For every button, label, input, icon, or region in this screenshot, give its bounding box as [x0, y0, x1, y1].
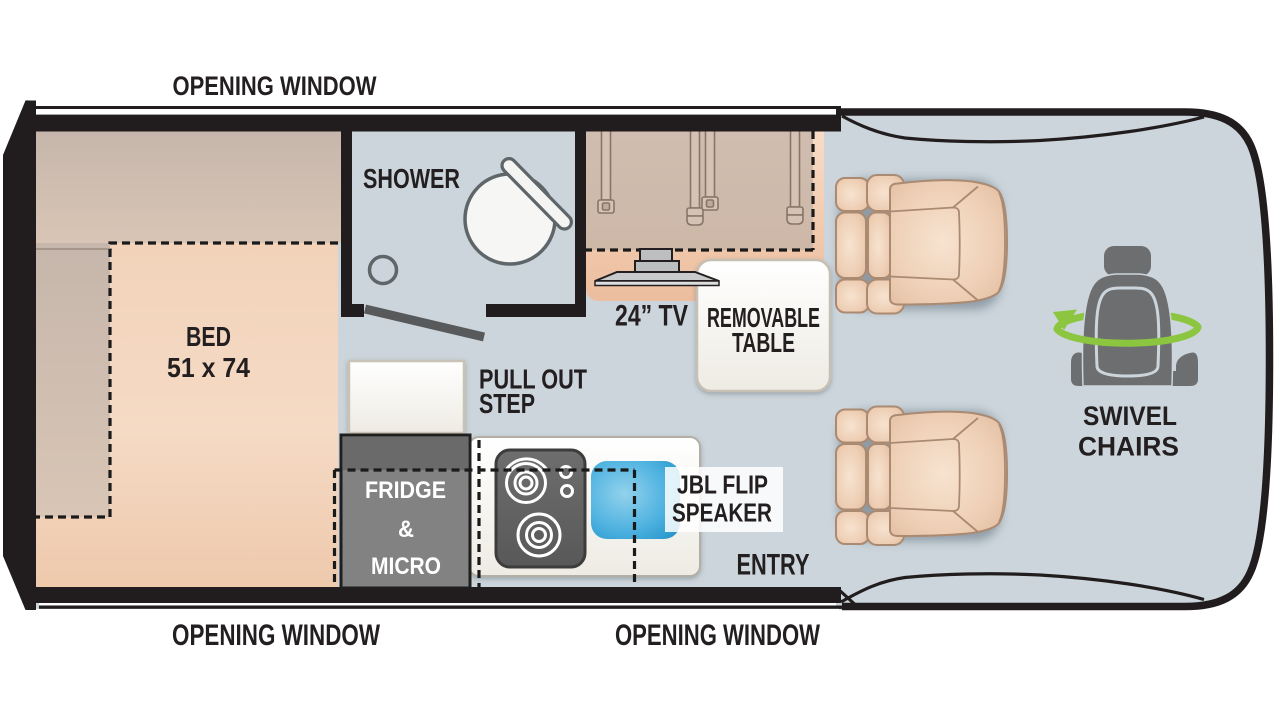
svg-text:STEP: STEP [479, 388, 535, 419]
svg-text:CHAIRS: CHAIRS [1078, 432, 1179, 462]
svg-text:OPENING WINDOW: OPENING WINDOW [615, 619, 820, 652]
svg-text:BED: BED [186, 321, 231, 352]
svg-text:51 x 74: 51 x 74 [167, 352, 250, 383]
svg-text:SPEAKER: SPEAKER [672, 500, 772, 528]
svg-text:SHOWER: SHOWER [363, 163, 460, 194]
svg-text:FRIDGE: FRIDGE [365, 477, 446, 504]
svg-text:OPENING WINDOW: OPENING WINDOW [173, 71, 377, 101]
svg-text:JBL FLIP: JBL FLIP [677, 472, 768, 500]
svg-text:TABLE: TABLE [732, 327, 795, 358]
svg-text:24” TV: 24” TV [615, 300, 688, 333]
svg-text:ENTRY: ENTRY [737, 549, 810, 582]
svg-text:MICRO: MICRO [371, 553, 441, 580]
svg-text:&: & [398, 516, 414, 543]
svg-text:OPENING WINDOW: OPENING WINDOW [172, 619, 380, 652]
svg-text:SWIVEL: SWIVEL [1083, 401, 1177, 431]
